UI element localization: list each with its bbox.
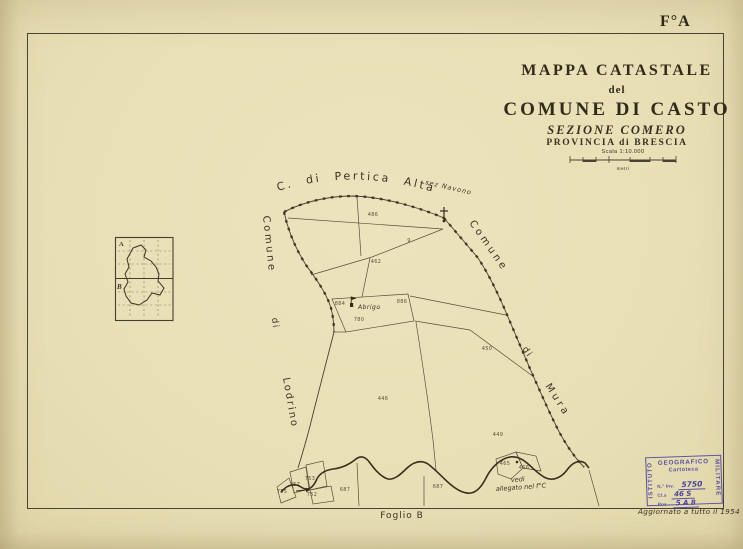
inset-label-a: A bbox=[119, 241, 124, 248]
east-neighbor-word-2: di bbox=[520, 345, 535, 360]
west-neighbor-label: Comune di Lodrino bbox=[260, 215, 300, 429]
scale-label: Scala 1:10.000 bbox=[602, 149, 645, 155]
north-neighbor-label: C. di Pertica Alta bbox=[275, 170, 437, 196]
east-neighbor-label: Comune di Mura bbox=[467, 218, 572, 418]
scale-unit-label: metri bbox=[617, 166, 630, 171]
bottom-sheet-label: Foglio B bbox=[380, 511, 424, 521]
boundary-cross-icon bbox=[440, 207, 448, 221]
east-boundary bbox=[444, 218, 584, 467]
east-neighbor-word-1: Comune bbox=[467, 218, 510, 273]
southwest-boundary bbox=[298, 332, 334, 468]
west-neighbor-word-1: Comune bbox=[260, 215, 277, 273]
inset-key-map: A B bbox=[116, 238, 174, 321]
north-boundary bbox=[284, 196, 444, 218]
attachment-note-line2: allegato nel f°C bbox=[496, 481, 547, 493]
point-marker bbox=[516, 461, 519, 464]
stamp-org-left: ISTITUTO bbox=[647, 458, 655, 502]
igm-stamp: ISTITUTO MILITARE GEOGRAFICO Cartoteca N… bbox=[645, 455, 723, 507]
inset-label-b: B bbox=[116, 283, 122, 291]
west-neighbor-word-3: Lodrino bbox=[280, 377, 300, 429]
update-note: Aggiornato a tutto il 1954 bbox=[634, 507, 740, 516]
scale-bar: Scala 1:10.000 metri bbox=[570, 149, 676, 171]
boundary-hatch-marks bbox=[284, 196, 584, 467]
east-neighbor-word-3: Mura bbox=[542, 382, 571, 419]
attachment-note: vedi allegato nel f°C bbox=[496, 475, 547, 493]
parcel-lines bbox=[277, 197, 599, 506]
cadastral-map-canvas: Scala 1:10.000 metri A B bbox=[0, 0, 743, 549]
boundary-cross-base bbox=[443, 220, 446, 223]
west-boundary bbox=[284, 212, 334, 332]
hamlet-icon bbox=[350, 297, 357, 308]
stamp-org-right: MILITARE bbox=[713, 456, 721, 500]
commune-boundary-lines bbox=[284, 196, 584, 468]
hamlet-label: Abrigo bbox=[357, 304, 381, 311]
west-neighbor-word-2: di bbox=[269, 317, 280, 329]
